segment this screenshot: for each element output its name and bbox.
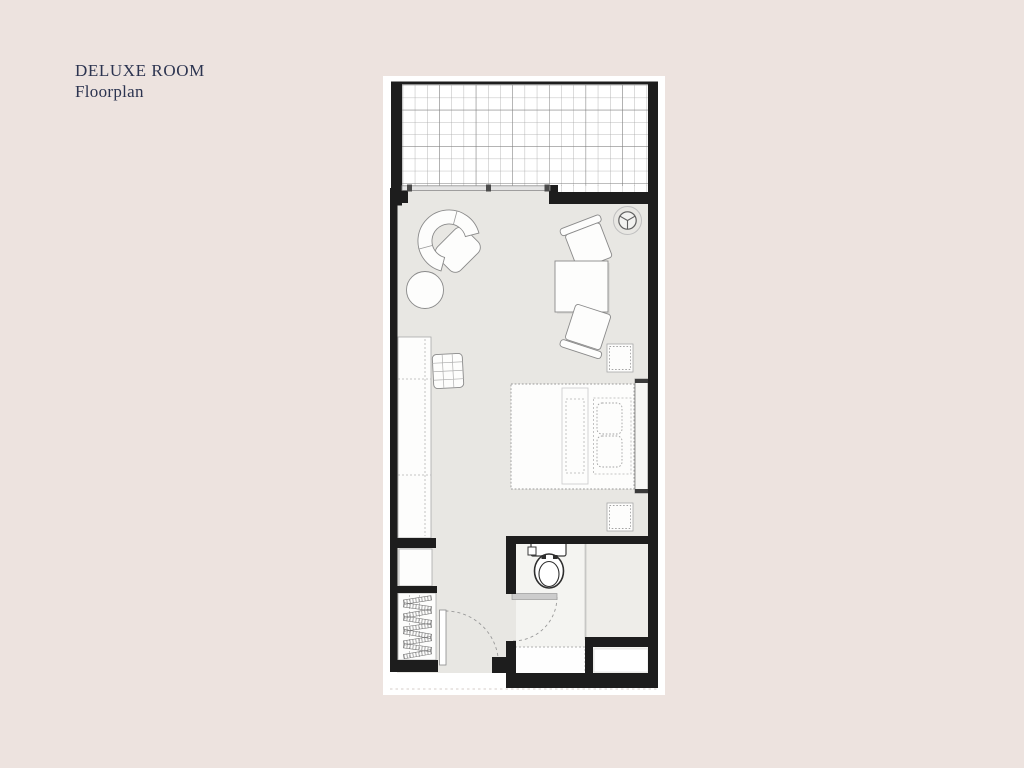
page: DELUXE ROOM Floorplan (0, 0, 1024, 768)
nightstand-lower (607, 503, 633, 531)
terrace-grid (402, 85, 648, 194)
bed (511, 384, 634, 489)
shower-floor (586, 544, 648, 640)
hanging-closet (398, 593, 436, 660)
rattan-stool (432, 353, 464, 389)
wardrobe (398, 337, 431, 538)
sliding-window (402, 185, 550, 192)
ottoman (407, 272, 444, 309)
storage-cabinet (399, 549, 432, 586)
floorplan-drawing (0, 0, 1024, 768)
nightstand-upper (607, 344, 633, 372)
storage-niche (594, 649, 648, 672)
headboard (635, 379, 648, 493)
